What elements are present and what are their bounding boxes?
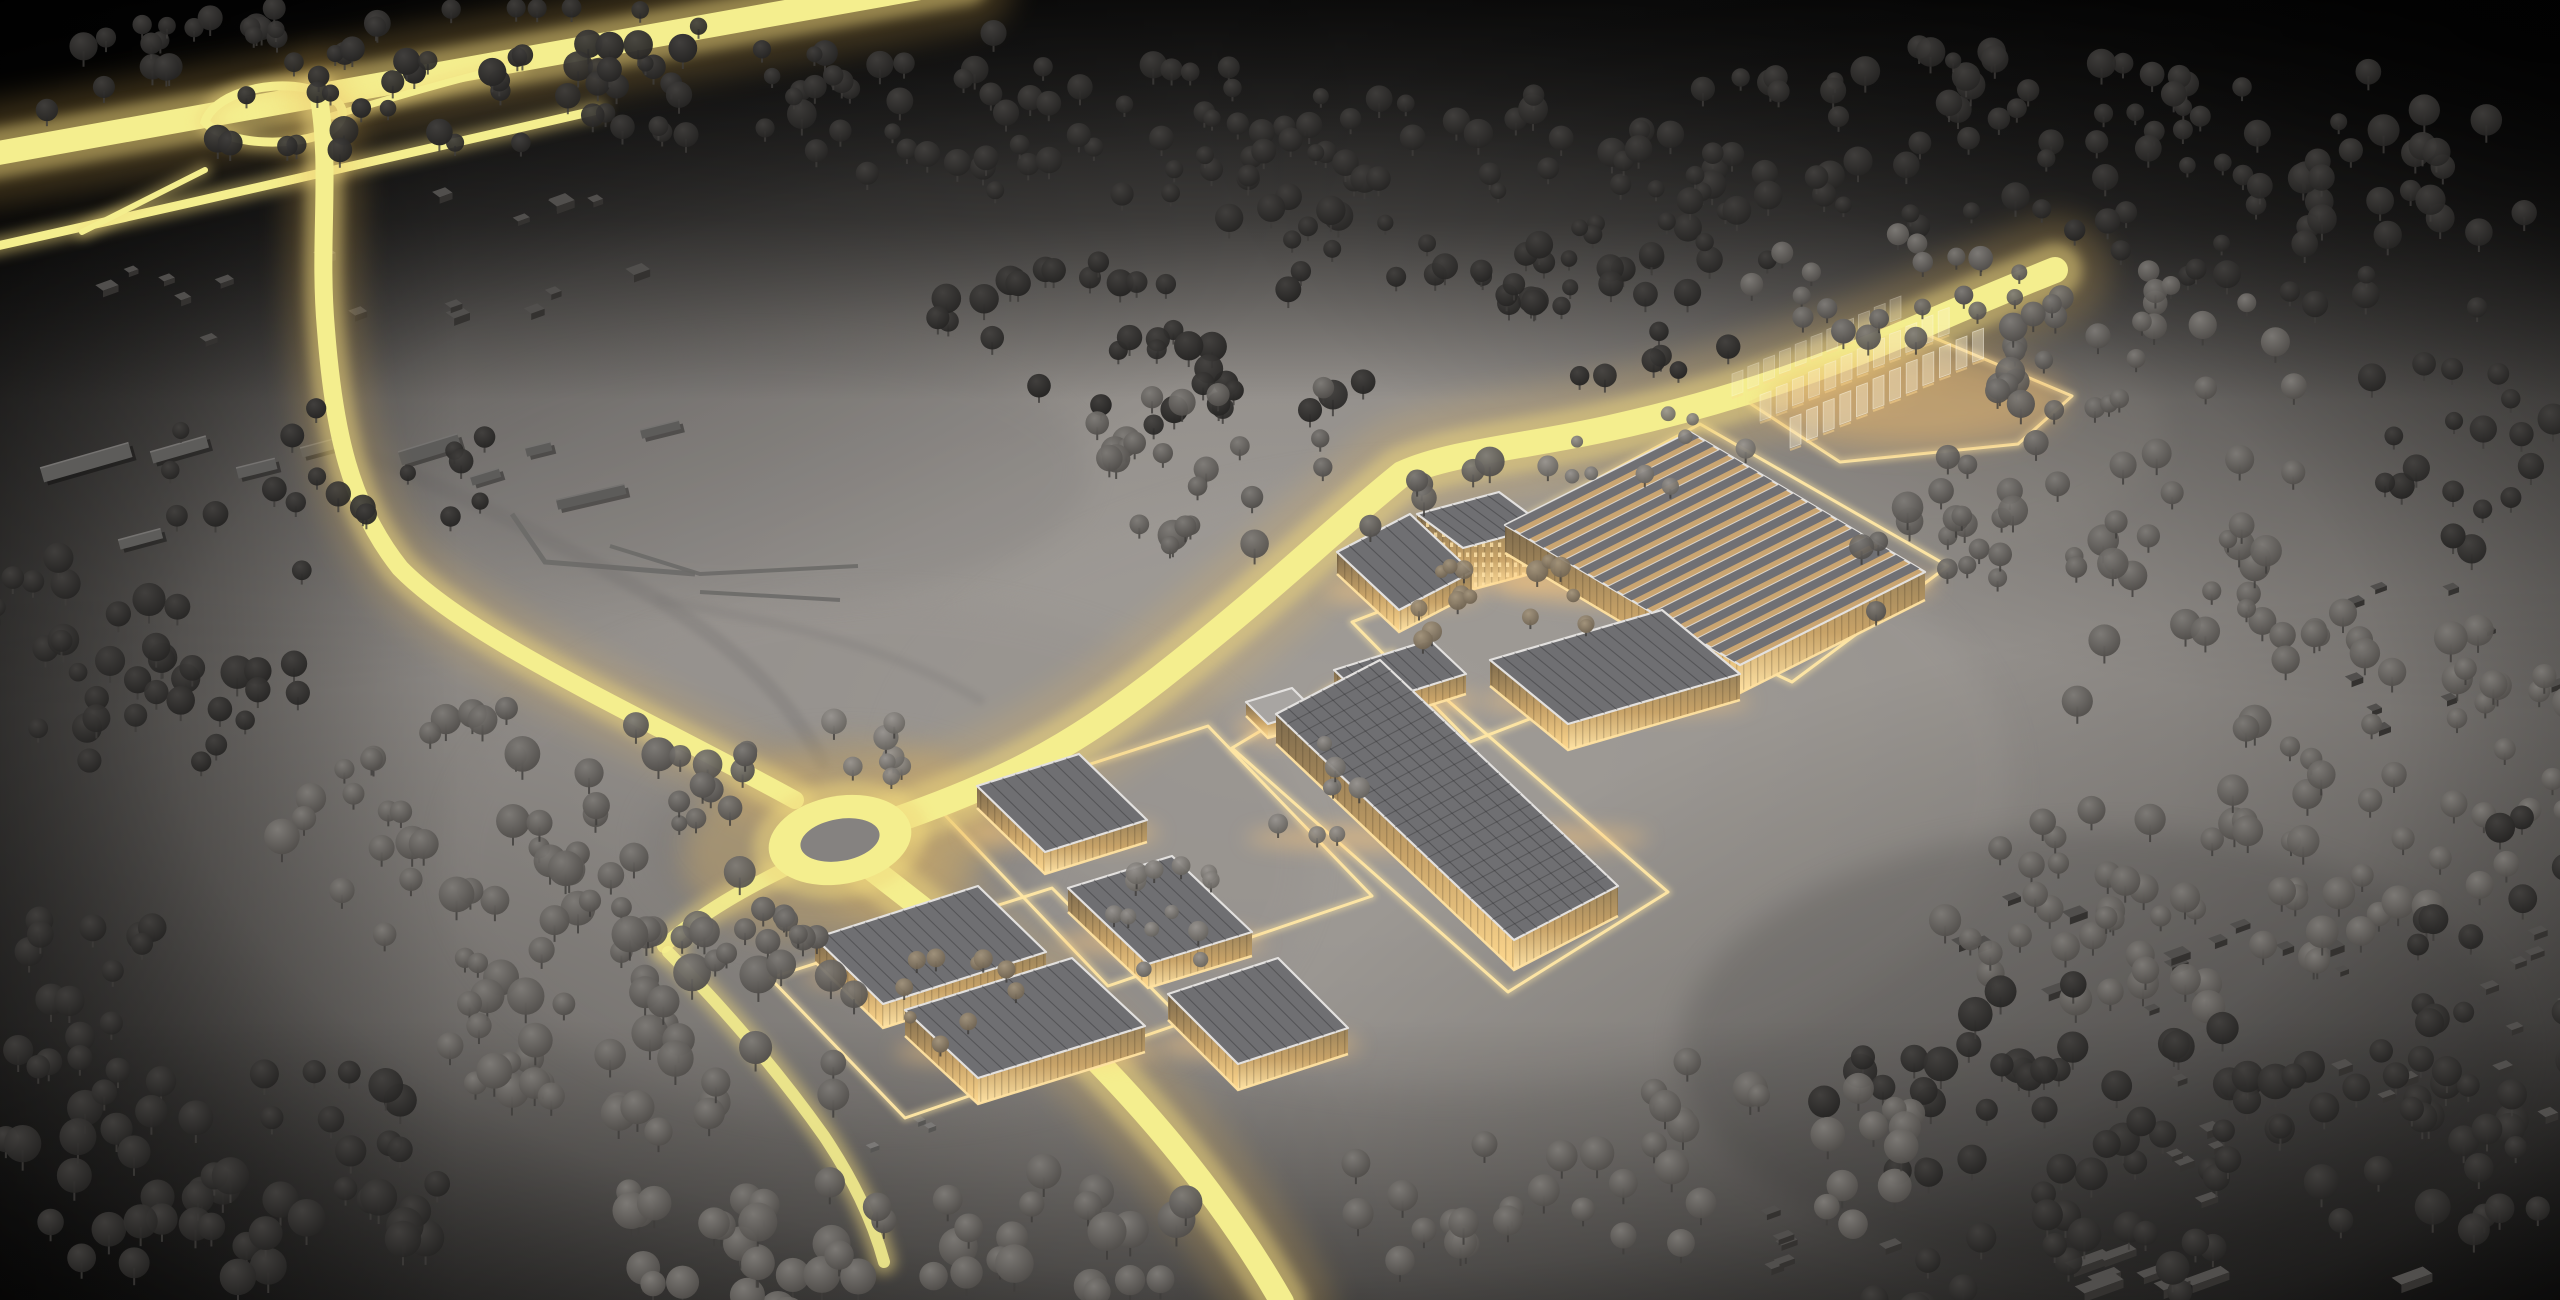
- tree: [1916, 37, 1946, 67]
- tree: [2281, 1064, 2306, 1089]
- tree: [2057, 1031, 2088, 1062]
- tree: [158, 17, 176, 35]
- tree: [267, 21, 284, 38]
- tree: [552, 992, 575, 1015]
- tree: [50, 569, 80, 599]
- tree: [2001, 182, 2029, 210]
- tree: [1464, 119, 1493, 148]
- tree: [471, 493, 488, 510]
- tree: [1937, 558, 1958, 579]
- tree: [360, 748, 383, 771]
- tree: [815, 960, 847, 992]
- tree: [1884, 1129, 1919, 1164]
- tree: [1661, 406, 1676, 421]
- tree: [2132, 312, 2152, 332]
- tree: [2505, 1136, 2527, 1158]
- tree: [1366, 85, 1393, 112]
- tree: [2493, 851, 2519, 877]
- tree: [2094, 104, 2113, 123]
- tree: [979, 83, 1002, 106]
- tree: [2328, 1208, 2353, 1233]
- tree: [26, 1055, 50, 1079]
- tree: [2029, 808, 2056, 835]
- tree: [1740, 273, 1763, 296]
- tree: [2237, 599, 2256, 618]
- tree: [1831, 319, 1856, 344]
- tree: [738, 1203, 777, 1242]
- tree: [2097, 978, 2124, 1005]
- tree: [753, 40, 771, 58]
- tree: [954, 69, 974, 89]
- tree: [2342, 1073, 2370, 1101]
- tree: [1366, 166, 1391, 191]
- tree: [172, 422, 189, 439]
- tree: [369, 835, 395, 861]
- tree: [2088, 624, 2120, 656]
- tree: [1126, 271, 1148, 293]
- tree: [96, 27, 116, 47]
- tree: [2077, 796, 2105, 824]
- tree: [2087, 49, 2116, 78]
- tree: [277, 136, 297, 156]
- tree: [2304, 948, 2329, 973]
- tree: [198, 5, 223, 30]
- tree: [2375, 473, 2395, 493]
- tree: [281, 651, 307, 677]
- tree: [69, 32, 97, 60]
- tree: [1667, 1229, 1695, 1257]
- tree: [959, 1013, 977, 1031]
- tree: [2232, 77, 2252, 97]
- tree: [1754, 181, 1783, 210]
- tree: [1892, 492, 1924, 524]
- tree: [393, 48, 420, 75]
- tree: [1686, 413, 1699, 426]
- tree: [668, 790, 690, 812]
- tree: [690, 18, 707, 35]
- tree: [208, 697, 233, 722]
- tree: [518, 1023, 553, 1058]
- tree: [2134, 804, 2165, 835]
- tree: [178, 1100, 213, 1135]
- tree: [579, 890, 601, 912]
- tree: [1571, 1197, 1595, 1221]
- tree: [4, 1125, 41, 1162]
- tree: [419, 722, 441, 744]
- tree: [980, 20, 1006, 46]
- tree: [739, 1031, 772, 1064]
- tree: [326, 481, 351, 506]
- tree: [1165, 160, 1183, 178]
- tree: [2194, 376, 2217, 399]
- tree: [1308, 826, 1325, 843]
- tree: [2301, 620, 2328, 647]
- tree: [1963, 202, 1980, 219]
- tree: [733, 742, 757, 766]
- tree: [50, 630, 72, 652]
- tree: [1988, 568, 2007, 587]
- tree: [1149, 126, 1174, 151]
- tree: [886, 87, 913, 114]
- tree: [1385, 1246, 1414, 1275]
- tree: [92, 1212, 127, 1247]
- tree: [1117, 325, 1142, 350]
- tree: [1731, 68, 1749, 86]
- tree: [1907, 233, 1927, 253]
- tree: [1959, 928, 1982, 951]
- tree: [950, 1256, 982, 1288]
- tree: [2501, 389, 2520, 408]
- tree: [245, 677, 270, 702]
- tree: [624, 30, 653, 59]
- tree: [623, 712, 649, 738]
- tree: [1188, 476, 1208, 496]
- tree: [2232, 815, 2263, 846]
- tree: [2137, 524, 2160, 547]
- tree: [548, 851, 584, 887]
- tree: [1976, 1099, 1998, 1121]
- tree: [1636, 465, 1655, 484]
- tree: [2170, 964, 2201, 995]
- tree: [2494, 738, 2516, 760]
- tree: [2412, 352, 2436, 376]
- tree: [2095, 208, 2120, 233]
- tree: [2440, 790, 2467, 817]
- tree: [1174, 331, 1203, 360]
- tree: [1851, 1045, 1875, 1069]
- tree: [480, 886, 509, 915]
- tree: [2085, 130, 2108, 153]
- tree: [2471, 104, 2503, 136]
- tree: [1169, 389, 1196, 416]
- tree: [926, 306, 949, 329]
- tree: [1978, 940, 2003, 965]
- tree: [594, 1039, 626, 1071]
- tree: [512, 44, 533, 65]
- tree: [2470, 415, 2497, 442]
- tree: [496, 804, 530, 838]
- tree: [1397, 94, 1415, 112]
- tree: [449, 449, 474, 474]
- tree: [385, 1221, 421, 1257]
- tree: [1238, 165, 1260, 187]
- tree: [583, 792, 610, 819]
- tree: [2422, 138, 2450, 166]
- tree: [2366, 187, 2394, 215]
- tree: [1019, 1191, 1044, 1216]
- tree: [1007, 982, 1024, 999]
- tree: [198, 1213, 226, 1241]
- tree: [1325, 757, 1346, 778]
- tree: [1161, 184, 1180, 203]
- tree: [823, 65, 843, 85]
- tree: [77, 748, 101, 772]
- tree: [2023, 430, 2048, 455]
- tree: [2415, 185, 2445, 215]
- tree: [2067, 1218, 2101, 1252]
- tree: [495, 697, 518, 720]
- tree: [92, 1079, 117, 1104]
- tree: [166, 686, 195, 715]
- tree: [2508, 884, 2537, 913]
- tree: [1406, 469, 1428, 491]
- tree: [1161, 536, 1179, 554]
- tree: [1313, 457, 1332, 476]
- tree: [669, 745, 691, 767]
- tree: [1570, 366, 1589, 385]
- tree: [2329, 599, 2357, 627]
- tree: [1562, 279, 1578, 295]
- tree: [59, 1118, 96, 1155]
- tree: [1041, 258, 1066, 283]
- tree: [260, 1106, 283, 1129]
- tree: [821, 708, 847, 734]
- tree: [2215, 1146, 2242, 1173]
- tree: [2330, 113, 2347, 130]
- tree: [142, 633, 170, 661]
- tree: [673, 122, 698, 147]
- tree: [478, 58, 506, 86]
- tree: [1887, 223, 1909, 245]
- tree: [1418, 234, 1436, 252]
- tree: [2415, 1189, 2451, 1225]
- tree: [79, 914, 106, 941]
- tree: [2467, 297, 2487, 317]
- tree: [2487, 363, 2509, 385]
- tree: [1561, 250, 1578, 267]
- tree: [1814, 1194, 1840, 1220]
- tree: [1820, 77, 1846, 103]
- tree: [191, 751, 211, 771]
- tree: [250, 1059, 279, 1088]
- tree: [1909, 131, 1932, 154]
- tree: [1087, 1212, 1126, 1251]
- tree: [1914, 1158, 1943, 1187]
- tree: [1947, 248, 1965, 266]
- tree: [2075, 1157, 2108, 1190]
- tree: [2441, 523, 2466, 548]
- tree: [2225, 445, 2254, 474]
- tree: [1323, 240, 1341, 258]
- tree: [1410, 600, 1427, 617]
- tree: [631, 1, 649, 19]
- tree: [2346, 916, 2376, 946]
- tree: [2368, 114, 2400, 146]
- tree: [1411, 1218, 1436, 1243]
- tree: [1110, 182, 1133, 205]
- tree: [67, 1045, 92, 1070]
- tree: [387, 1136, 413, 1162]
- tree: [1475, 447, 1505, 477]
- tree: [1174, 515, 1196, 537]
- tree: [1716, 334, 1740, 358]
- aerial-site-render: [0, 0, 2560, 1300]
- tree: [1136, 961, 1152, 977]
- tree: [205, 734, 227, 756]
- tree: [2442, 481, 2464, 503]
- tree: [144, 680, 168, 704]
- tree: [1188, 921, 1208, 941]
- tree: [1810, 1117, 1845, 1152]
- tree: [292, 560, 312, 580]
- tree: [166, 505, 188, 527]
- tree: [2302, 291, 2328, 317]
- tree: [439, 877, 475, 913]
- tree: [237, 86, 255, 104]
- tree: [897, 138, 918, 159]
- tree: [43, 543, 73, 573]
- tree: [2217, 774, 2248, 805]
- tree: [1945, 52, 1961, 68]
- tree: [1145, 860, 1164, 879]
- tree: [1311, 429, 1329, 447]
- tree: [1767, 80, 1789, 102]
- tree: [1443, 559, 1458, 574]
- tree: [2161, 481, 2184, 504]
- tree: [1870, 1075, 1895, 1100]
- tree: [2182, 1229, 2210, 1257]
- tree: [1153, 443, 1173, 463]
- tree: [1471, 1131, 1497, 1157]
- tree: [1686, 166, 1705, 185]
- tree: [1329, 826, 1345, 842]
- tree: [507, 977, 544, 1014]
- tree: [693, 1098, 725, 1130]
- tree: [1686, 1188, 1717, 1219]
- tree: [1654, 1149, 1689, 1184]
- tree: [1537, 157, 1559, 179]
- tree: [598, 862, 625, 889]
- tree: [2269, 1115, 2293, 1139]
- tree: [2065, 556, 2087, 578]
- tree: [986, 181, 1004, 199]
- tree: [927, 948, 946, 967]
- tree: [1793, 287, 1811, 305]
- tree: [135, 1095, 167, 1127]
- tree: [1736, 438, 1756, 458]
- tree: [1296, 112, 1322, 138]
- tree: [2378, 658, 2406, 686]
- tree: [1351, 369, 1376, 394]
- tree: [1316, 196, 1345, 225]
- tree: [2142, 438, 2172, 468]
- tree: [161, 461, 180, 480]
- tree: [2048, 852, 2069, 873]
- tree: [2369, 1039, 2393, 1063]
- tree: [117, 1135, 150, 1168]
- tree: [1639, 242, 1664, 267]
- tree: [701, 1067, 730, 1096]
- tree: [2008, 923, 2032, 947]
- tree: [1120, 908, 1136, 924]
- tree: [37, 1209, 64, 1236]
- tree: [1929, 904, 1961, 936]
- tree: [540, 905, 570, 935]
- tree: [1546, 1140, 1578, 1172]
- tree: [1387, 1180, 1418, 1211]
- tree: [610, 114, 635, 139]
- tree: [718, 796, 743, 821]
- tree: [612, 916, 649, 953]
- tree: [1036, 147, 1063, 174]
- tree: [2007, 98, 2027, 118]
- tree: [1207, 383, 1230, 406]
- tree: [2101, 1070, 2132, 1101]
- tree: [2111, 240, 2131, 260]
- tree: [334, 759, 354, 779]
- tree: [1298, 398, 1322, 422]
- tree: [686, 808, 707, 829]
- tree: [474, 426, 496, 448]
- tree: [1633, 282, 1658, 307]
- tree: [466, 1013, 491, 1038]
- tree: [2509, 422, 2533, 446]
- tree: [399, 868, 422, 891]
- tree: [2358, 788, 2382, 812]
- tree: [511, 133, 531, 153]
- tree: [724, 856, 756, 888]
- tree: [2018, 851, 2045, 878]
- tree: [1720, 142, 1744, 166]
- tree: [1141, 386, 1163, 408]
- tree: [1298, 216, 1318, 236]
- tree: [1218, 56, 1240, 78]
- tree: [766, 949, 796, 979]
- tree: [1413, 630, 1432, 649]
- tree: [908, 951, 926, 969]
- tree: [863, 1193, 892, 1222]
- tree: [1808, 1086, 1840, 1118]
- tree: [1349, 777, 1370, 798]
- tree: [1005, 271, 1030, 296]
- tree: [381, 70, 404, 93]
- tree: [2428, 846, 2451, 869]
- tree: [2237, 293, 2256, 312]
- tree: [476, 1053, 512, 1089]
- tree: [340, 36, 365, 61]
- tree: [2291, 230, 2318, 257]
- tree: [741, 1246, 775, 1280]
- tree: [2441, 358, 2463, 380]
- tree: [67, 1243, 96, 1272]
- tree: [555, 83, 581, 109]
- tree: [2250, 535, 2282, 567]
- tree: [440, 506, 460, 526]
- tree: [1571, 219, 1588, 236]
- tree: [95, 646, 125, 676]
- tree: [526, 810, 552, 836]
- tree: [1658, 212, 1676, 230]
- tree: [124, 704, 147, 727]
- tree: [2532, 664, 2556, 688]
- tree: [2381, 762, 2406, 787]
- tree: [895, 978, 913, 996]
- tree: [1610, 1222, 1636, 1248]
- tree: [2403, 454, 2430, 481]
- tree: [303, 1060, 326, 1083]
- tree: [2358, 363, 2386, 391]
- tree: [933, 1185, 963, 1215]
- tree: [2400, 1097, 2424, 1121]
- tree: [2186, 259, 2207, 280]
- tree: [2062, 686, 2093, 717]
- tree: [2350, 638, 2381, 669]
- tree: [1835, 196, 1852, 213]
- tree: [2361, 714, 2382, 735]
- tree: [764, 68, 780, 84]
- tree: [1593, 364, 1617, 388]
- tree: [843, 757, 863, 777]
